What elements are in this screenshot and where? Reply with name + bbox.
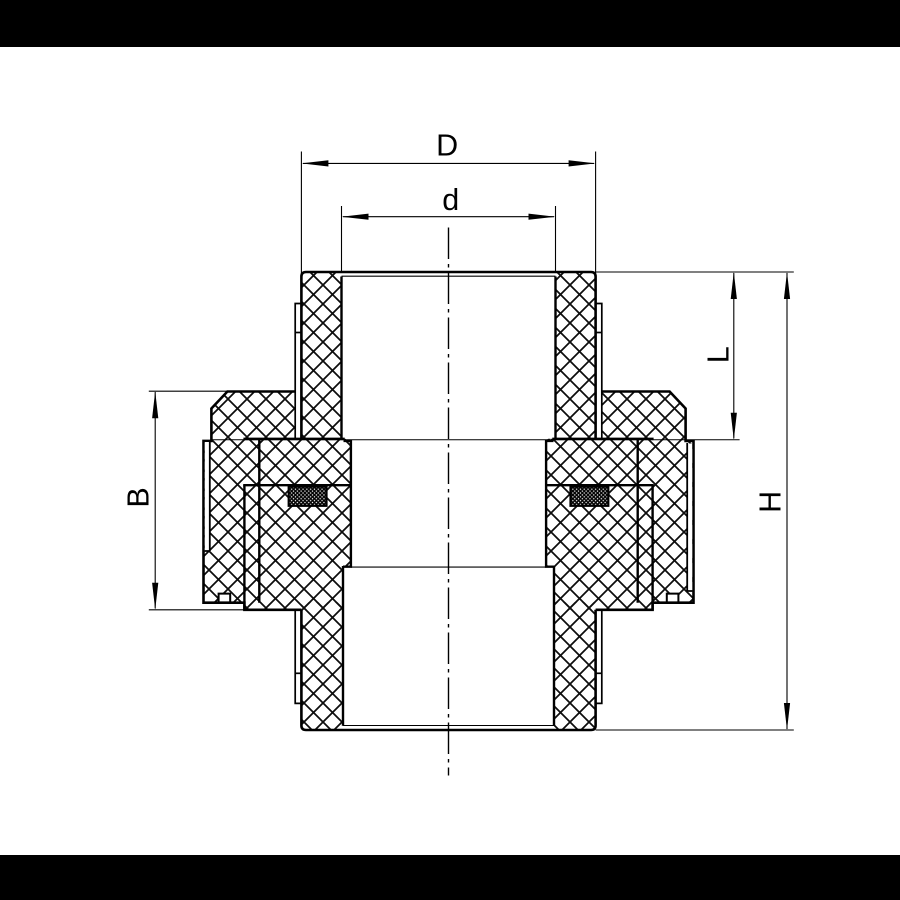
svg-text:D: D [436, 129, 458, 163]
svg-text:L: L [702, 346, 736, 363]
svg-text:B: B [122, 487, 156, 507]
svg-text:H: H [754, 491, 788, 513]
svg-text:d: d [442, 183, 459, 217]
